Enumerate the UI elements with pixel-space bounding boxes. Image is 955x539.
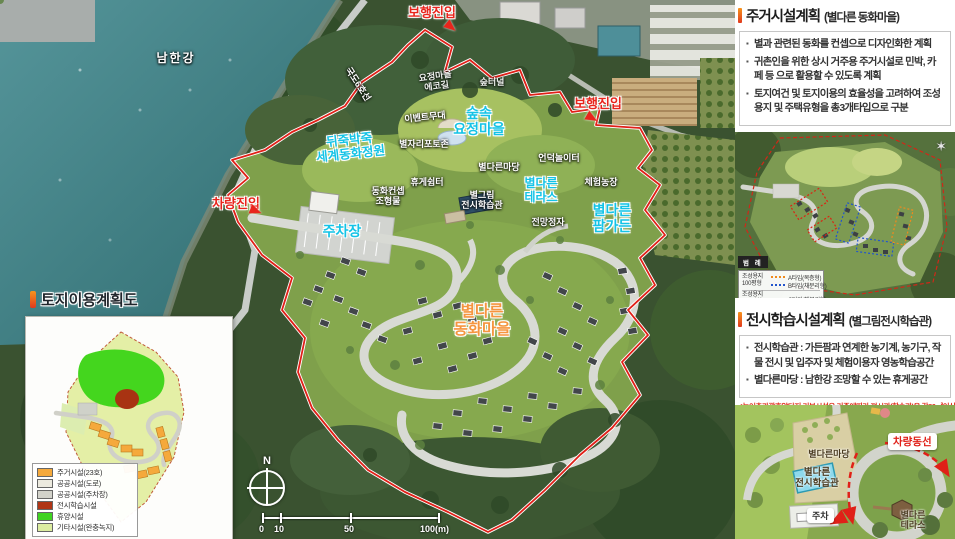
exhibition-panel-title: 전시학습시설계획: [746, 309, 845, 330]
type-map-legend: 범 례 조성용지 100평형 A타입(복층형) B타입(채분리형) 조성용지 1…: [738, 252, 824, 298]
exhibition-detail-map: 차량동선 별다른마당 별다른 전시학습관 주차 별다른 테라스: [735, 405, 955, 539]
legend-swatch: [37, 501, 53, 510]
legend-row: 주거시설(23호): [37, 467, 133, 478]
exhibition-bullet: 전시학습관 : 가든팜과 연계한 농기계, 농기구, 작물 전시 및 입주자 및…: [746, 342, 944, 371]
dotted-swatch-orange: [771, 276, 785, 278]
legend-swatch: [37, 523, 53, 532]
scale-0: 0: [259, 524, 264, 534]
legend-group-100: 조성용지 100평형 A타입(복층형) B타입(채분리형): [742, 273, 820, 289]
legend-header: 범 례: [738, 256, 768, 268]
legend-swatch: [37, 512, 53, 521]
title-accent-bar-icon: [738, 8, 742, 23]
scale-10: 10: [274, 524, 284, 534]
exhibition-bullet: 별다른마당 : 남한강 조망할 수 있는 휴게공간: [746, 374, 944, 389]
title-accent-bar-icon: [738, 312, 742, 327]
housing-panel-header: 주거시설계획 (별다른 동화마을): [735, 0, 955, 28]
legend-swatch: [37, 479, 53, 488]
land-use-legend: 주거시설(23호) 공공시설(도로) 공공시설(주차장) 전시학습시설 휴양시설…: [32, 463, 138, 537]
dotted-swatch-blue: [771, 284, 785, 286]
label-detail-exhibit-hall: 별다른 전시학습관: [788, 468, 846, 490]
housing-panel-subtitle: (별다른 동화마을): [824, 9, 899, 25]
housing-bullet: 귀촌인을 위한 상시 거주용 주거시설로 민박, 카페 등 으로 활용할 수 있…: [746, 56, 944, 85]
housing-panel-body: 별과 관련된 동화를 컨셉으로 디자인화한 계획 귀촌인을 위한 상시 거주용 …: [739, 31, 951, 126]
inset-title: 토지이용계획도: [30, 289, 138, 310]
legend-swatch: [37, 490, 53, 499]
legend-row: 공공시설(주차장): [37, 489, 133, 500]
legend-row: 휴양시설: [37, 511, 133, 522]
compass-star-icon: ✶: [935, 138, 947, 155]
housing-panel-title: 주거시설계획: [746, 5, 820, 26]
north-label: N: [255, 455, 279, 467]
title-accent-bar-icon: [30, 291, 36, 308]
housing-type-map: ✶ 범 례 조성용지 100평형 A타입(복층형) B타입(채분리형) 조성용지…: [735, 132, 955, 298]
legend-swatch: [37, 468, 53, 477]
housing-bullet: 별과 관련된 동화를 컨셉으로 디자인화한 계획: [746, 38, 944, 53]
label-vehicle-flow: 차량동선: [888, 433, 937, 450]
compass-icon: [249, 470, 285, 506]
exhibition-panel-subtitle: (별그림전시학습관): [849, 313, 931, 329]
legend-group-120: 조성용지 120평형 C타입(채분리형): [742, 292, 820, 298]
exhibition-panel-body: 전시학습관 : 가든팜과 연계한 농기계, 농기구, 작물 전시 및 입주자 및…: [739, 335, 951, 398]
info-sidebar: 주거시설계획 (별다른 동화마을) 별과 관련된 동화를 컨셉으로 디자인화한 …: [735, 0, 955, 539]
legend-row: 공공시설(도로): [37, 478, 133, 489]
label-detail-parking: 주차: [807, 508, 834, 523]
site-plan-poster: 보행진입 보행진입 차량진입 남한강 국도6호선 요정마을 에코길 숲터널 이벤…: [0, 0, 955, 539]
label-detail-terrace: 별다른 테라스: [893, 510, 933, 531]
inset-title-text: 토지이용계획도: [41, 289, 138, 310]
label-detail-madang: 별다른마당: [803, 449, 855, 459]
land-use-plan-inset: 주거시설(23호) 공공시설(도로) 공공시설(주차장) 전시학습시설 휴양시설…: [25, 316, 233, 539]
housing-bullet: 토지여건 및 토지이용의 효율성을 고려하여 조성용지 및 주택유형을 총3개타…: [746, 88, 944, 117]
legend-row: 전시학습시설: [37, 500, 133, 511]
legend-row: 기타시설(완충녹지): [37, 522, 133, 533]
scale-bar: [262, 513, 440, 523]
scale-50: 50: [344, 524, 354, 534]
housing-plan-panel: 주거시설계획 (별다른 동화마을) 별과 관련된 동화를 컨셉으로 디자인화한 …: [735, 0, 955, 126]
master-plan-map: 보행진입 보행진입 차량진입 남한강 국도6호선 요정마을 에코길 숲터널 이벤…: [0, 0, 735, 539]
exhibition-panel-header: 전시학습시설계획 (별그림전시학습관): [735, 304, 955, 332]
exhibition-plan-panel: 전시학습시설계획 (별그림전시학습관) 전시학습관 : 가든팜과 연계한 농기계…: [735, 304, 955, 412]
scale-100: 100(m): [420, 524, 449, 534]
